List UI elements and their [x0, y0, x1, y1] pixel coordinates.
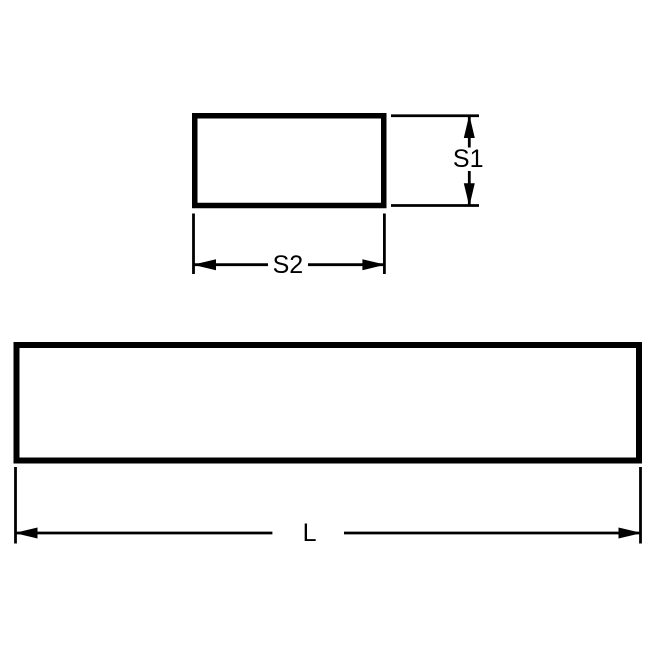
svg-text:S1: S1	[453, 145, 484, 173]
svg-text:S2: S2	[273, 251, 304, 279]
svg-text:L: L	[303, 519, 317, 547]
